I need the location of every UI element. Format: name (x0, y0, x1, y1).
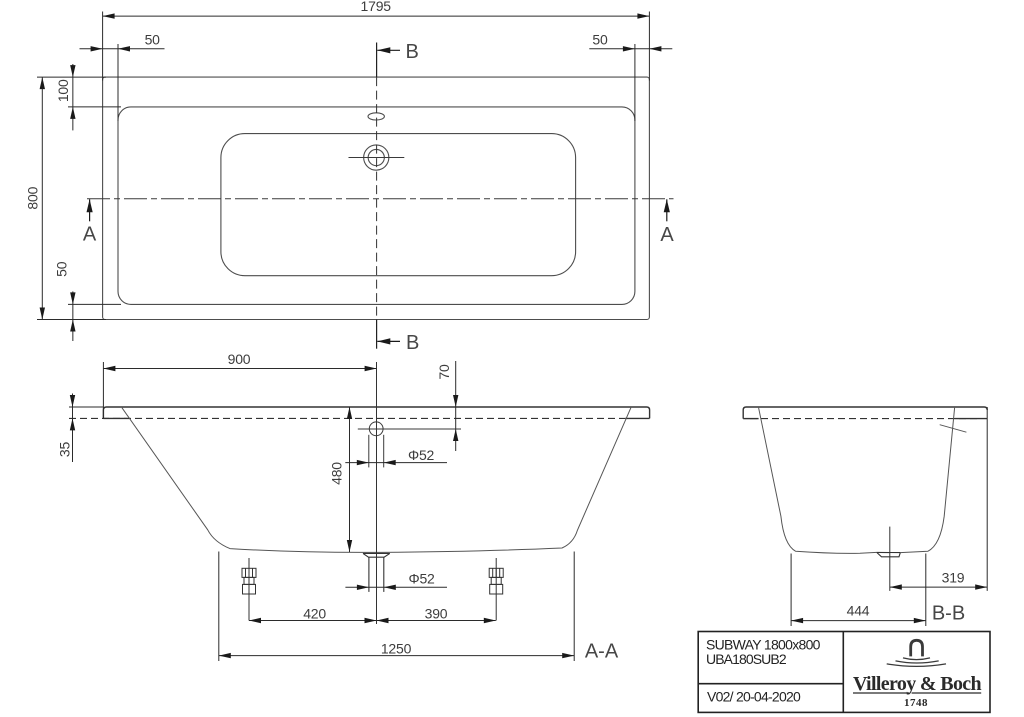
svg-text:B: B (406, 41, 419, 63)
svg-text:50: 50 (54, 261, 70, 277)
svg-text:70: 70 (436, 364, 452, 380)
svg-text:1748: 1748 (904, 697, 928, 709)
svg-text:800: 800 (24, 186, 40, 209)
svg-text:A: A (83, 224, 97, 246)
svg-text:B: B (406, 332, 419, 354)
svg-text:UBA180SUB2: UBA180SUB2 (706, 651, 787, 667)
svg-text:Φ52: Φ52 (409, 571, 436, 587)
svg-text:A: A (660, 224, 674, 246)
svg-text:319: 319 (942, 570, 965, 586)
svg-text:420: 420 (303, 605, 326, 621)
svg-text:50: 50 (145, 32, 161, 48)
svg-text:444: 444 (847, 603, 870, 619)
svg-text:B-B: B-B (932, 603, 965, 625)
svg-text:50: 50 (592, 32, 608, 48)
svg-text:100: 100 (55, 79, 71, 102)
svg-text:480: 480 (329, 462, 345, 485)
svg-text:1795: 1795 (361, 0, 392, 14)
svg-text:900: 900 (228, 351, 251, 367)
svg-text:Φ52: Φ52 (408, 447, 435, 463)
svg-text:35: 35 (57, 442, 73, 458)
svg-text:390: 390 (425, 605, 448, 621)
svg-text:Villeroy & Boch: Villeroy & Boch (853, 673, 982, 695)
svg-text:V02/ 20-04-2020: V02/ 20-04-2020 (707, 689, 801, 705)
svg-text:A-A: A-A (585, 641, 619, 663)
svg-text:1250: 1250 (381, 641, 412, 657)
